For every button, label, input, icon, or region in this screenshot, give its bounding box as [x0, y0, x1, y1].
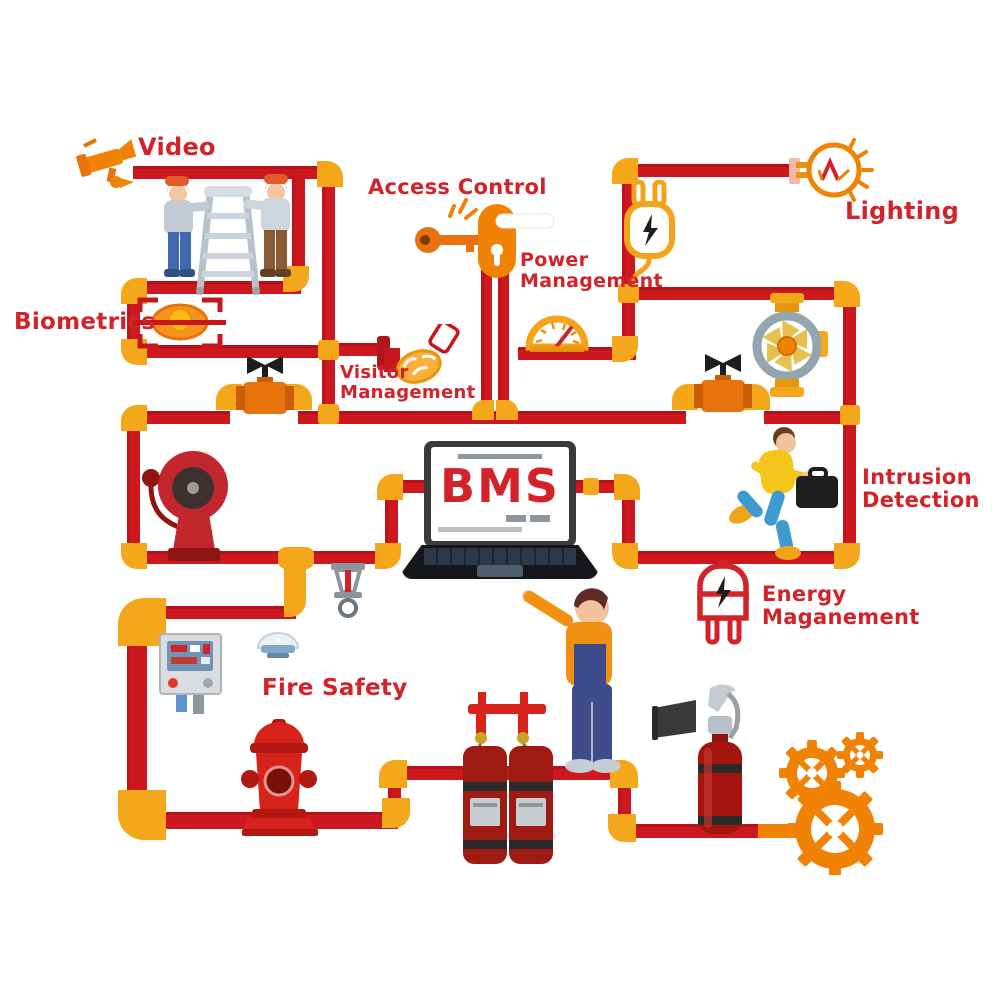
running-intruder-illustration	[720, 424, 840, 564]
pipe-elbow	[121, 405, 147, 431]
label-access-control: Access Control	[368, 176, 547, 199]
fire-extinguisher-icon	[652, 678, 767, 838]
pipe-segment	[127, 620, 147, 812]
pipe-coupling	[318, 404, 339, 424]
pipe-bend	[284, 563, 306, 617]
technician-illustration	[508, 572, 628, 777]
pipe-segment	[843, 300, 856, 556]
valve-icon	[236, 352, 294, 416]
pipe-elbow	[382, 798, 410, 828]
smoke-detector-icon	[254, 626, 302, 662]
pipe-segment	[133, 411, 230, 424]
pipe-segment	[322, 174, 335, 414]
pipe-elbow	[317, 161, 343, 187]
label-line: Energy	[762, 583, 920, 606]
pipe-segment	[158, 606, 296, 619]
screen-bar	[506, 515, 526, 522]
label-intrusion-detection: Intrusion Detection	[862, 466, 980, 512]
pipe-elbow	[612, 543, 638, 569]
label-line: Management	[520, 271, 663, 292]
pipe-segment	[481, 270, 492, 416]
pipe-elbow	[375, 543, 401, 569]
label-line: Management	[340, 383, 476, 403]
power-gauge-icon	[524, 300, 590, 354]
valve-icon	[694, 350, 752, 414]
pipe-elbow	[834, 281, 860, 307]
label-visitor-management: Visitor Management	[340, 363, 476, 403]
bms-diagram: BMS Video Biometrics Access Control Powe…	[0, 0, 1000, 1000]
pipe-segment	[335, 343, 381, 356]
label-line: Visitor	[340, 363, 476, 383]
screen-line	[438, 527, 522, 532]
energy-plug-icon	[692, 560, 754, 648]
fire-hydrant-icon	[240, 715, 318, 837]
pipe-segment	[498, 270, 509, 416]
label-line: Maganement	[762, 606, 920, 629]
label-video: Video	[138, 134, 216, 160]
ladder-workers-illustration	[152, 170, 302, 295]
label-fire-safety: Fire Safety	[262, 676, 408, 701]
pipe-segment	[764, 411, 852, 424]
laptop-keys	[424, 548, 576, 565]
alarm-bell-icon	[135, 442, 253, 570]
pipe-coupling	[840, 405, 860, 425]
pipe-coupling	[318, 340, 339, 360]
light-bulb-icon	[794, 130, 876, 206]
pipe-elbow	[614, 474, 640, 500]
pipe-elbow	[608, 814, 636, 842]
label-lighting: Lighting	[845, 198, 959, 224]
bms-laptop: BMS	[402, 441, 598, 581]
pipe-elbow	[377, 474, 403, 500]
fire-alarm-panel-icon	[158, 628, 226, 718]
pipe-segment	[636, 164, 796, 177]
sprinkler-icon	[326, 560, 370, 622]
pipe-elbow	[496, 400, 518, 420]
screen-bar	[530, 515, 550, 522]
bms-screen-text: BMS	[431, 459, 569, 513]
label-line: Intrusion	[862, 466, 980, 489]
label-energy-management: Energy Maganement	[762, 583, 920, 629]
pipe-elbow	[472, 400, 494, 420]
pipe-elbow	[379, 760, 407, 788]
label-line: Power	[520, 250, 663, 271]
ventilation-fan-icon	[748, 293, 832, 401]
gears-icon	[775, 725, 887, 875]
label-line: Detection	[862, 489, 980, 512]
pipe-elbow	[118, 790, 166, 840]
label-biometrics: Biometrics	[14, 310, 155, 335]
label-power-management: Power Management	[520, 250, 663, 292]
